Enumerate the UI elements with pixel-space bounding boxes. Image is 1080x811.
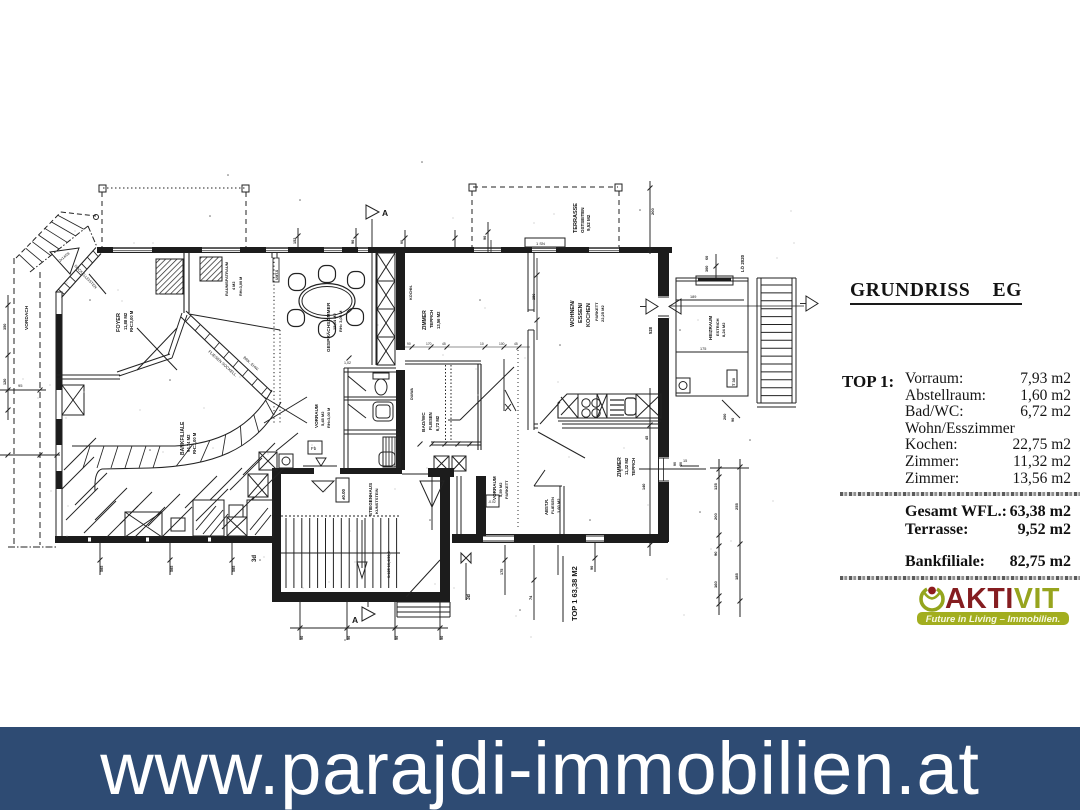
svg-text:200: 200	[723, 414, 727, 420]
svg-text:TERRASSE: TERRASSE	[573, 203, 579, 233]
svg-text:140: 140	[642, 484, 646, 490]
svg-text:8,24 M2: 8,24 M2	[721, 322, 726, 337]
svg-text:ZIMMER: ZIMMER	[617, 457, 623, 477]
svg-text:RH=3,00 M: RH=3,00 M	[192, 432, 197, 454]
svg-text:74: 74	[529, 595, 533, 600]
svg-text:HEIZRAUM: HEIZRAUM	[708, 316, 713, 340]
svg-text:4 M2: 4 M2	[232, 282, 236, 290]
svg-text:RH=3,00 M: RH=3,00 M	[239, 277, 243, 296]
svg-text:9,52 M2: 9,52 M2	[586, 214, 591, 231]
svg-text:60: 60	[705, 256, 709, 260]
svg-text:WOHNEN/: WOHNEN/	[570, 300, 576, 327]
svg-text:125: 125	[713, 483, 718, 490]
svg-text:PARKETT: PARKETT	[594, 302, 599, 321]
svg-text:ESSEN/: ESSEN/	[578, 302, 584, 323]
svg-text:VORRAUM: VORRAUM	[492, 476, 497, 500]
svg-text:BRK. EHW.: BRK. EHW.	[242, 356, 259, 372]
svg-text:90: 90	[347, 636, 351, 640]
svg-text:2x14/28: 2x14/28	[58, 251, 70, 262]
svg-text:ABST.R.: ABST.R.	[544, 499, 549, 515]
svg-text:350: 350	[3, 324, 7, 330]
svg-text:100: 100	[499, 342, 505, 346]
svg-text:UMT.S: UMT.S	[275, 269, 279, 280]
svg-text:KOCHN.: KOCHN.	[409, 285, 413, 300]
svg-text:OSTSEITEN: OSTSEITEN	[580, 207, 585, 233]
svg-text:1 SN: 1 SN	[536, 241, 545, 246]
svg-text:STIEGENHAUS: STIEGENHAUS	[368, 483, 373, 516]
svg-text:6,72 M2: 6,72 M2	[435, 415, 440, 431]
svg-text:ESTRICH: ESTRICH	[715, 318, 720, 336]
svg-text:RAUMSPATRAUM: RAUMSPATRAUM	[224, 261, 229, 296]
svg-text:189: 189	[690, 295, 696, 299]
svg-text:±0.00: ±0.00	[341, 488, 346, 500]
svg-text:90: 90	[673, 462, 677, 466]
svg-text:ZIMMER: ZIMMER	[422, 310, 428, 330]
svg-text:45: 45	[645, 436, 649, 440]
svg-text:VORDACH: VORDACH	[24, 305, 30, 330]
svg-text:FLIESEN: FLIESEN	[428, 412, 433, 430]
svg-text:1,60 M2: 1,60 M2	[556, 498, 561, 513]
svg-text:KUNSTSTEIN: KUNSTSTEIN	[374, 488, 379, 514]
svg-text:22,25 M2: 22,25 M2	[600, 305, 605, 322]
svg-text:FOYER: FOYER	[116, 313, 122, 332]
svg-text:T 30: T 30	[731, 377, 736, 386]
svg-text:TEPPICH: TEPPICH	[429, 310, 434, 328]
svg-text:90: 90	[300, 636, 304, 640]
svg-text:Future in Living – Immobilien.: Future in Living – Immobilien.	[926, 614, 1061, 625]
svg-text:5,59 M2: 5,59 M2	[498, 482, 503, 497]
svg-text:PARKETT: PARKETT	[504, 480, 509, 499]
svg-text:200: 200	[650, 208, 655, 215]
svg-text:90: 90	[713, 551, 718, 556]
svg-text:170: 170	[426, 342, 432, 346]
svg-text:13,56 M2: 13,56 M2	[436, 311, 441, 329]
svg-text:90: 90	[400, 240, 404, 244]
svg-text:15,84 M2: 15,84 M2	[332, 313, 337, 330]
svg-text:FLIESEN: FLIESEN	[550, 497, 555, 514]
svg-text:RH= 3,00 M: RH= 3,00 M	[338, 310, 343, 332]
svg-text:11,88 M2: 11,88 M2	[123, 312, 128, 330]
svg-text:11,32 M2: 11,32 M2	[624, 457, 629, 475]
svg-text:350: 350	[532, 294, 536, 300]
svg-text:94,74 M2: 94,74 M2	[186, 434, 191, 452]
svg-text:175: 175	[500, 569, 504, 575]
svg-text:TOP 1 63,38 M2: TOP 1 63,38 M2	[570, 566, 579, 621]
svg-text:90: 90	[590, 566, 594, 570]
svg-text:528: 528	[648, 326, 653, 334]
svg-text:3d: 3d	[466, 594, 472, 600]
svg-text:45: 45	[442, 342, 446, 346]
svg-text:90: 90	[351, 240, 355, 244]
svg-text:GESPRÄCHSZIMMER: GESPRÄCHSZIMMER	[325, 302, 332, 352]
svg-text:RH=3,00 M: RH=3,00 M	[326, 407, 331, 428]
svg-text:A: A	[352, 615, 358, 625]
svg-text:300: 300	[705, 266, 709, 272]
svg-text:VORRAUM: VORRAUM	[314, 404, 319, 428]
svg-text:585: 585	[232, 566, 236, 572]
svg-text:15: 15	[683, 459, 687, 463]
svg-text:120: 120	[3, 379, 7, 385]
svg-text:3d: 3d	[252, 555, 258, 562]
svg-text:AKTIVIT: AKTIVIT	[945, 583, 1060, 615]
svg-text:90: 90	[395, 636, 399, 640]
svg-text:RH=3,00 M: RH=3,00 M	[129, 310, 134, 332]
svg-text:152: 152	[293, 238, 297, 244]
svg-text:A: A	[382, 208, 388, 218]
svg-text:160: 160	[713, 581, 718, 588]
svg-text:255: 255	[734, 503, 739, 510]
svg-text:BAD/WC: BAD/WC	[421, 412, 427, 432]
svg-text:LÖ 2020: LÖ 2020	[740, 254, 745, 272]
svg-text:KOCHEN: KOCHEN	[586, 303, 592, 327]
svg-text:FLIESEN SOCKELL.: FLIESEN SOCKELL.	[207, 349, 238, 378]
svg-text:90: 90	[440, 636, 444, 640]
svg-text:200: 200	[713, 513, 718, 520]
svg-text:45: 45	[514, 342, 518, 346]
svg-text:Fb: Fb	[311, 446, 317, 451]
svg-text:90: 90	[407, 342, 411, 346]
svg-text:185: 185	[734, 573, 739, 580]
svg-text:6:125 16,4/30,3: 6:125 16,4/30,3	[387, 551, 391, 578]
svg-text:175: 175	[700, 347, 706, 351]
svg-text:585: 585	[170, 566, 174, 572]
svg-text:5,45 M2: 5,45 M2	[320, 411, 325, 426]
svg-text:DU/WA: DU/WA	[410, 388, 414, 400]
svg-text:TEPPICH: TEPPICH	[631, 458, 636, 476]
svg-text:95: 95	[18, 383, 23, 388]
svg-text:10: 10	[480, 342, 484, 346]
svg-text:585: 585	[100, 566, 104, 572]
svg-text:1,02: 1,02	[344, 361, 351, 365]
svg-text:90: 90	[483, 236, 487, 240]
svg-text:90: 90	[731, 418, 735, 422]
